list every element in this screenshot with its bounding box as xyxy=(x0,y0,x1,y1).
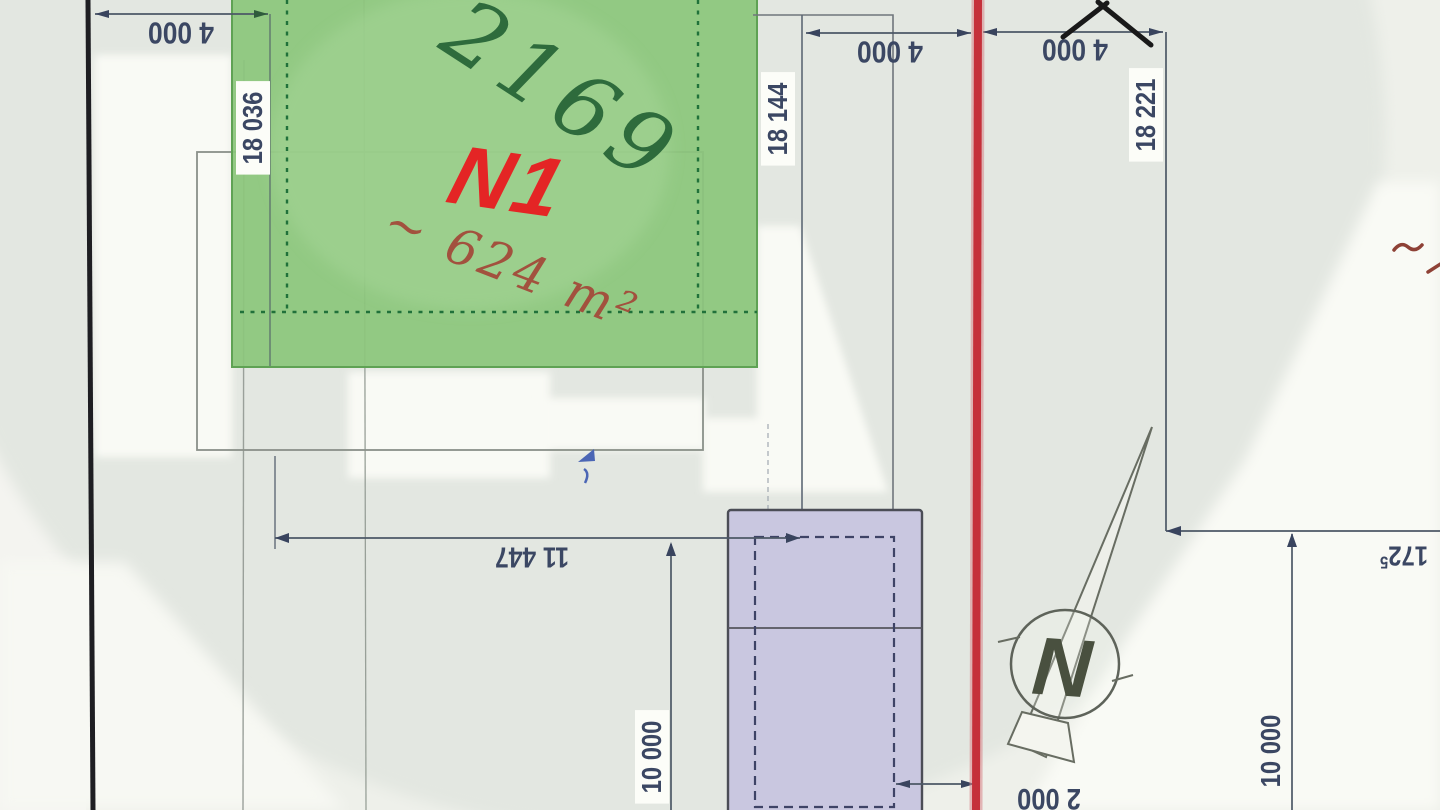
plan-drawing: N xyxy=(0,0,1440,810)
compass-n-label: N xyxy=(1029,621,1096,716)
dimension-building-length-left: 10 000 xyxy=(635,710,669,803)
dimension-left-depth: 18 036 xyxy=(236,81,270,174)
building-footprint xyxy=(728,510,922,810)
dimension-top-left: 4 000 xyxy=(148,18,214,49)
dimension-top-right: 4 000 xyxy=(1042,35,1108,66)
dimension-top-middle: 4 000 xyxy=(857,37,923,68)
dimension-middle-depth: 18 144 xyxy=(761,72,795,165)
red-boundary-line xyxy=(976,0,978,810)
dimension-right-depth: 18 221 xyxy=(1129,68,1163,161)
dimension-plot-width: 11 447 xyxy=(495,542,569,571)
dimension-right-boundary: 1725 xyxy=(1380,541,1428,570)
dimension-building-offset: 2 000 xyxy=(1017,783,1081,810)
dimension-building-length-right: 10 000 xyxy=(1257,715,1285,788)
site-plan-scan: N 4 000 4 000 4 000 18 036 18 144 18 221… xyxy=(0,0,1440,810)
